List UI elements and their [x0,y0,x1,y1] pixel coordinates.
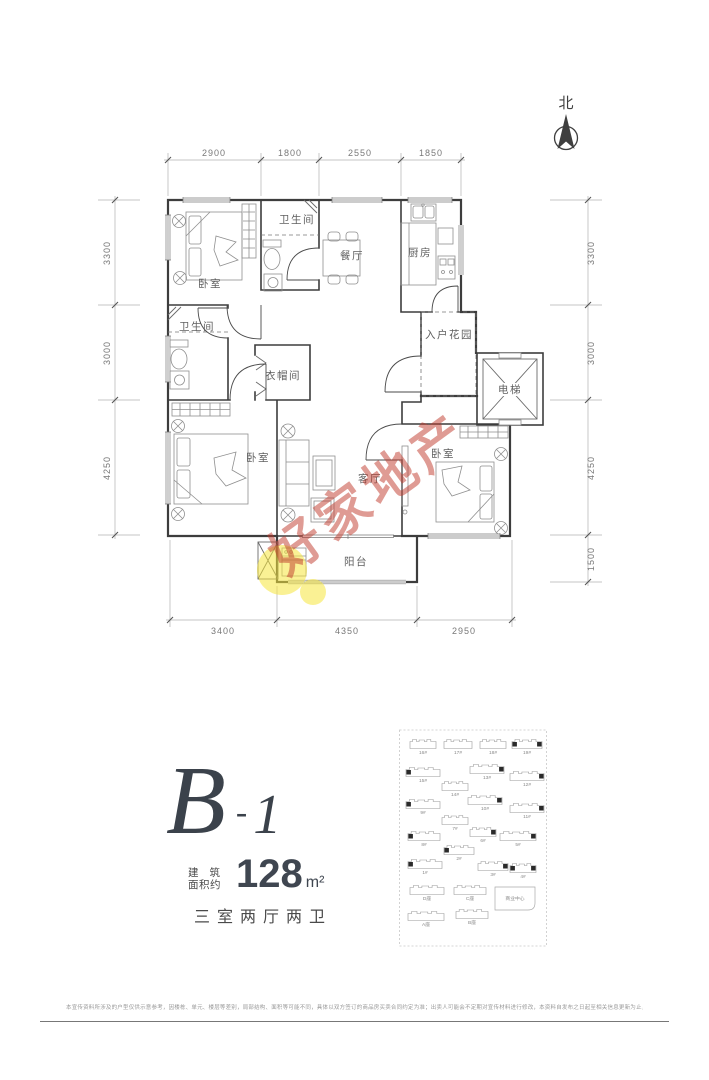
room-label-bedroom2: 卧室 [246,451,270,464]
unit-area-prefix: 建筑 面积约 [188,867,231,891]
unit-code: B - 1 [166,752,406,850]
dim-top-4: 1850 [419,148,443,158]
site-building-label: 12# [523,782,531,788]
site-building-label: 4# [520,874,526,880]
unit-area-prefix-line1: 建筑 [188,867,231,879]
site-building-label: 7# [452,826,458,832]
watermark-blob-small [300,579,326,605]
room-label-garden: 入户花园 [425,328,473,341]
site-building-label: 11# [523,814,531,820]
site-building-label: 3# [490,872,496,878]
dimensions-bottom: 3400 4350 2950 [166,540,516,636]
room-label-bedroom1: 卧室 [198,277,222,290]
dim-right-1: 3300 [586,241,596,265]
dim-top-1: 2900 [202,148,226,158]
dim-bottom-3: 2950 [452,626,476,636]
unit-area-unit: m² [306,875,325,891]
floor-plan-drawing: 2900 1800 2550 1850 3300 3000 4250 [80,140,620,640]
site-plan: 16#17#18#19#15#13#12#14#9#10#11#7#8#6#5#… [398,727,548,949]
site-building-label: A座 [422,921,430,928]
unit-area: 建筑 面积约 128 m² [188,858,406,891]
site-plan-center: 商业中心 [495,887,535,910]
dim-left-2: 3000 [102,341,112,365]
dim-right-2: 3000 [586,341,596,365]
room-label-bath1: 卫生间 [279,213,315,226]
site-building-label: C座 [466,895,474,902]
site-building-label: D座 [423,895,431,902]
floorplan-page: 北 2900 1800 2550 1850 [0,0,709,1080]
site-building-label: B座 [468,919,476,926]
site-building-label: 14# [451,792,459,798]
dimensions-right: 3300 3000 4250 1500 [550,196,602,586]
unit-code-dash: - [236,794,247,832]
site-building-label: 19# [523,750,531,756]
dim-right-4: 1500 [586,547,596,571]
dim-top-2: 1800 [278,148,302,158]
furniture-bedroom1 [173,204,257,285]
dim-bottom-2: 4350 [335,626,359,636]
room-label-balcony: 阳台 [344,555,368,568]
dimensions-top: 2900 1800 2550 1850 [164,148,465,196]
room-label-dining: 餐厅 [340,249,364,262]
dim-left-3: 4250 [102,456,112,480]
footer-rule [40,1021,669,1022]
dim-left-1: 3300 [102,241,112,265]
site-building-label: 2# [456,856,462,862]
watermark: 好家地产 [257,403,481,605]
unit-code-letter: B [166,752,226,850]
dim-top-3: 2550 [348,148,372,158]
site-building-label: 13# [483,775,491,781]
room-label-bath2: 卫生间 [179,320,215,333]
site-building-label: 8# [421,842,427,848]
elevator-shaft: 电梯 [477,353,543,425]
site-building-label: 1# [422,870,428,876]
unit-info: B - 1 建筑 面积约 128 m² 三室两厅两卫 [166,752,406,927]
footer-disclaimer: 本宣传资料所涉及的户型仅供示意参考，因楼栋、单元、楼层等差别，局部结构、面积等可… [66,1003,643,1011]
dim-right-3: 4250 [586,456,596,480]
dim-bottom-1: 3400 [211,626,235,636]
commercial-center-label: 商业中心 [505,895,524,902]
furniture-bedroom2 [172,403,249,521]
site-building-label: 10# [481,806,489,812]
dimensions-left: 3300 3000 4250 [98,196,140,539]
unit-layout-desc: 三室两厅两卫 [194,903,406,927]
room-label-cloakroom: 衣帽间 [265,369,301,382]
unit-code-number: 1 [253,783,281,847]
site-building-label: 6# [480,838,486,844]
north-label: 北 [558,95,573,112]
site-building-label: 5# [515,842,521,848]
site-building-label: 18# [489,750,497,756]
site-building-label: 15# [419,778,427,784]
unit-area-prefix-line2: 面积约 [188,879,231,891]
site-building-label: 9# [420,810,426,816]
room-label-elevator: 电梯 [498,383,522,396]
site-building-label: 17# [454,750,462,756]
watermark-text: 好家地产 [258,403,481,587]
unit-area-value: 128 [236,858,303,891]
room-label-kitchen: 厨房 [408,246,432,259]
furniture-kitchen [401,204,455,285]
site-building-label: 16# [419,750,427,756]
